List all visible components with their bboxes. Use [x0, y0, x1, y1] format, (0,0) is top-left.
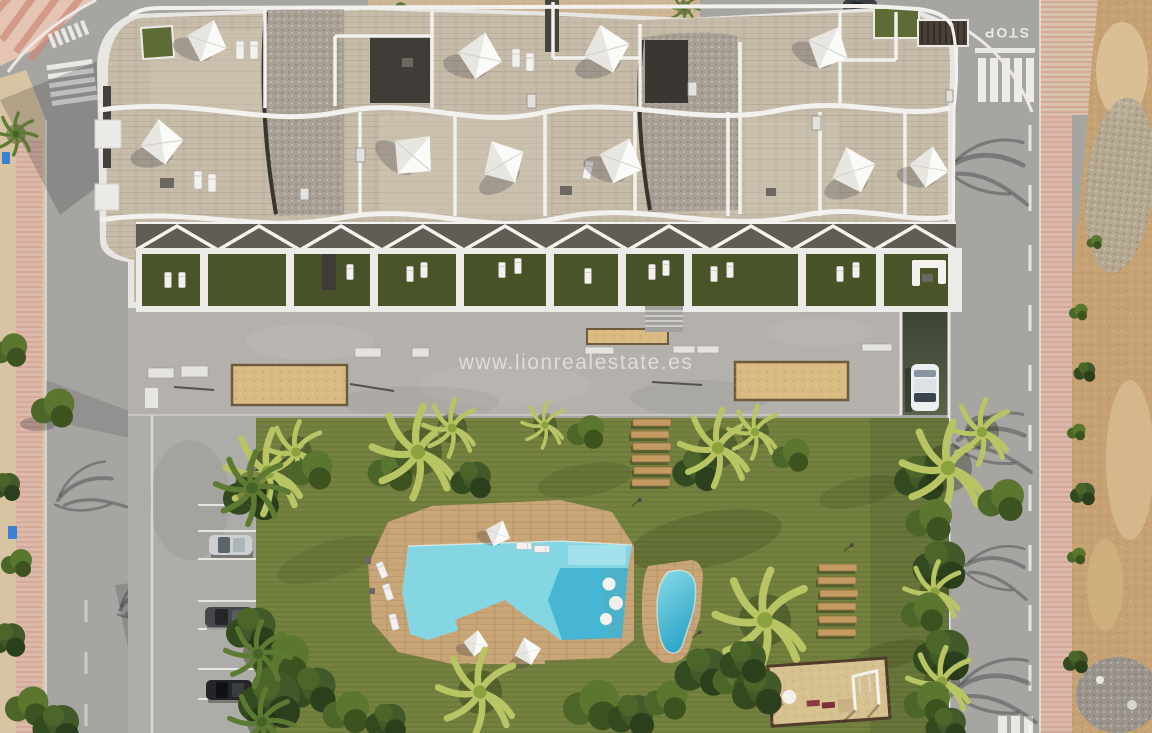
garden-unit	[378, 254, 456, 306]
garden-unit	[208, 254, 286, 306]
white-car	[905, 364, 939, 412]
stop-marking: STOP	[983, 25, 1029, 41]
sand-planter-1	[232, 365, 347, 405]
play-mat	[838, 698, 856, 712]
main-pool-area	[364, 500, 634, 671]
garden-unit	[626, 254, 684, 306]
garden-unit	[464, 254, 546, 306]
recycle-bin	[2, 152, 10, 164]
plaza-stairs	[645, 306, 683, 332]
parked-car-silver	[209, 535, 253, 558]
recycle-bin-2	[8, 526, 17, 539]
playground	[768, 658, 890, 726]
sand-planter-3	[735, 362, 848, 400]
building-complex	[95, 0, 968, 332]
pool-steps	[568, 545, 626, 565]
garden-unit	[692, 254, 798, 306]
terrace-doorway	[322, 254, 336, 290]
terrace-gardens	[136, 248, 962, 312]
aerial-render: STOP	[0, 0, 1152, 733]
stop-line	[975, 48, 1035, 53]
balcony-box	[95, 120, 121, 148]
play-bench-red	[807, 700, 820, 707]
wood-pergola	[918, 20, 968, 46]
utility-box	[145, 388, 158, 408]
balcony-box-2	[95, 184, 119, 210]
scene-svg: STOP	[0, 0, 1152, 733]
green-roof-1	[141, 26, 174, 59]
